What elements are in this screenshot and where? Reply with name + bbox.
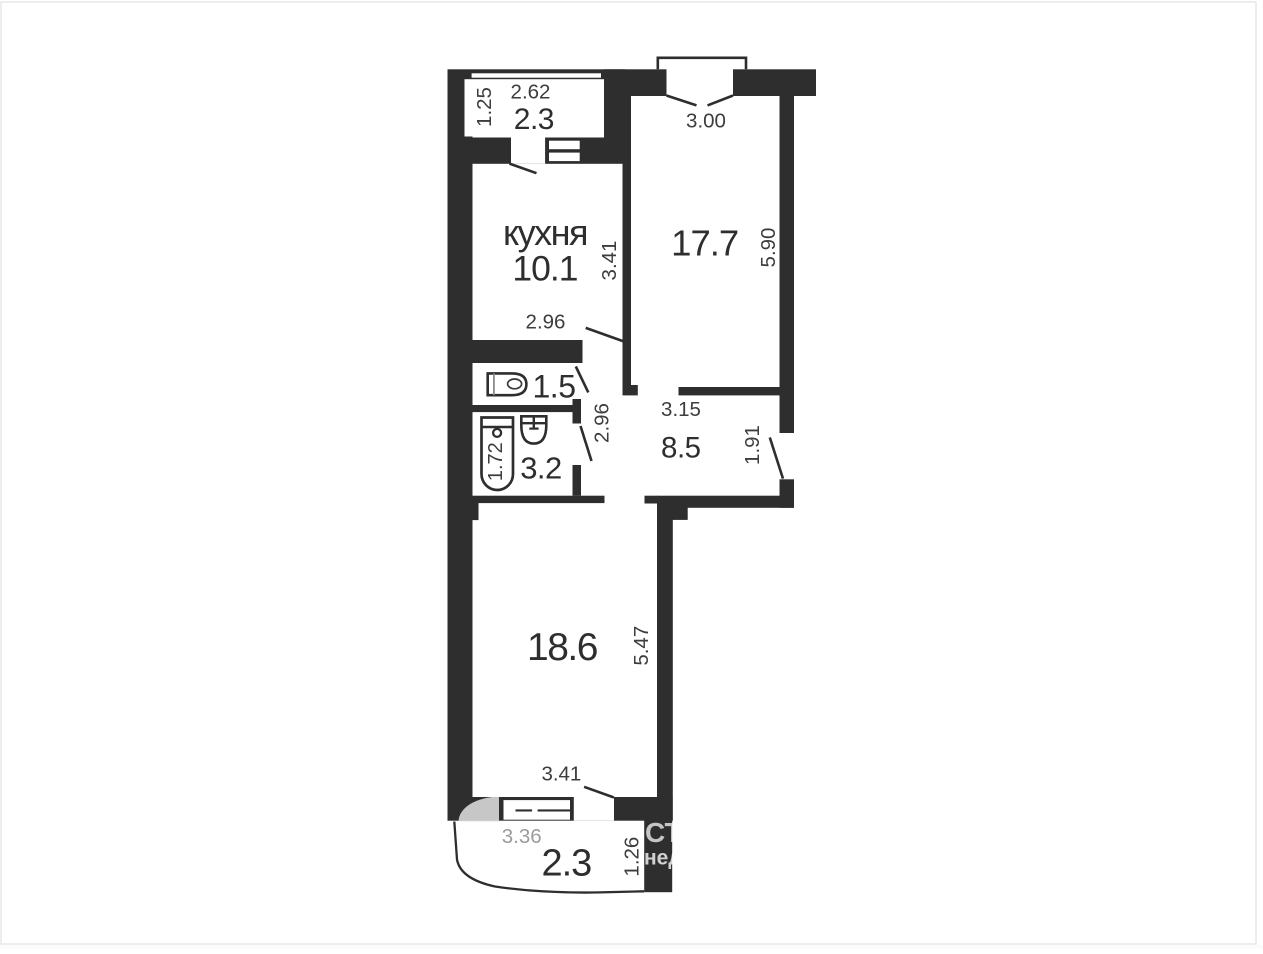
svg-text:СТ: СТ [645,817,682,848]
svg-text:нед: нед [644,847,682,870]
svg-text:1.5: 1.5 [533,368,576,404]
svg-text:3.00: 3.00 [686,110,726,133]
svg-text:2.96: 2.96 [591,403,614,443]
svg-text:1.25: 1.25 [473,87,496,127]
svg-text:18.6: 18.6 [527,626,597,669]
svg-text:1.72: 1.72 [485,442,507,481]
svg-text:2.62: 2.62 [511,81,551,104]
svg-text:3.15: 3.15 [661,398,701,421]
svg-text:3.36: 3.36 [502,825,542,848]
svg-text:17.7: 17.7 [671,222,738,263]
svg-text:1.91: 1.91 [741,425,764,465]
svg-text:кухня: кухня [503,212,587,253]
svg-text:5.47: 5.47 [630,626,653,666]
svg-text:2.96: 2.96 [526,311,566,334]
svg-text:8.5: 8.5 [661,431,701,464]
svg-text:3.2: 3.2 [520,450,562,485]
svg-text:2.3: 2.3 [541,843,591,885]
svg-text:2.3: 2.3 [514,103,554,136]
svg-text:3.41: 3.41 [541,763,581,786]
svg-text:10.1: 10.1 [512,249,577,289]
svg-text:1.26: 1.26 [620,837,643,877]
svg-text:5.90: 5.90 [757,228,780,268]
svg-text:3.41: 3.41 [598,241,621,281]
